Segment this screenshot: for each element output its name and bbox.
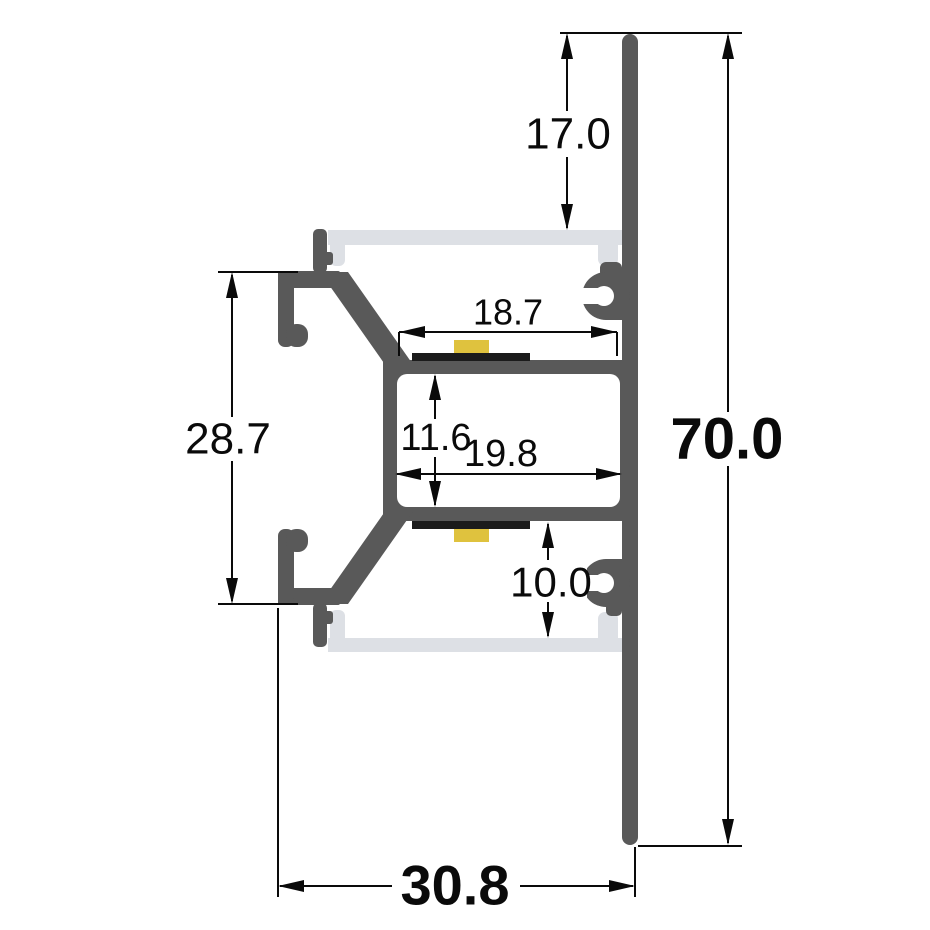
arrowhead-right	[591, 326, 617, 338]
arrowhead-left	[278, 880, 304, 892]
screw-slot-top	[576, 288, 606, 304]
arrowhead-down	[226, 578, 238, 604]
led-strip-bottom	[412, 521, 530, 542]
led-pcb-top	[412, 353, 530, 361]
top-diffuser-stub	[313, 229, 327, 273]
dim-label-channel-height: 11.6	[400, 417, 471, 459]
dim-label-lower-cavity-height: 10.0	[510, 559, 592, 606]
dimension-recess-depth: 17.0	[525, 33, 611, 230]
dim-label-channel-width: 19.8	[464, 433, 538, 475]
arrowhead-up	[226, 272, 238, 298]
arrowhead-right	[609, 880, 635, 892]
dim-label-overall-width: 30.8	[401, 854, 510, 917]
top-diffuser-band	[328, 230, 622, 245]
arrowhead-up	[722, 33, 734, 59]
drawing-canvas: 17.0 70.0 28.7 18.7 11.6	[0, 0, 930, 930]
bottom-flange-foot	[286, 529, 308, 552]
arrowhead-up	[542, 522, 554, 548]
arrowhead-up	[561, 33, 573, 59]
screw-boss-top	[576, 272, 630, 320]
top-flange-foot	[286, 324, 308, 347]
bottom-diffuser-stub	[313, 603, 327, 647]
top-diffuser	[328, 230, 622, 266]
dimension-lower-cavity-height: 10.0	[510, 522, 592, 638]
dim-label-upper-shelf-width: 18.7	[473, 292, 543, 333]
bottom-diffuser-band	[328, 638, 622, 652]
led-chip-top	[454, 340, 489, 353]
dimension-overall-width: 30.8	[278, 608, 635, 917]
dimension-overall-height: 70.0	[638, 33, 792, 846]
led-chip-bottom	[454, 529, 489, 542]
arrowhead-down	[542, 612, 554, 638]
led-strip-top	[412, 340, 530, 361]
profile-cross-section-drawing: 17.0 70.0 28.7 18.7 11.6	[0, 0, 930, 930]
arrowhead-down	[722, 819, 734, 845]
dim-label-front-plate-height: 28.7	[185, 415, 271, 464]
arrowhead-left	[399, 326, 425, 338]
bottom-stub-clip	[324, 611, 333, 624]
bottom-diffuser-right-hook	[598, 612, 618, 648]
dim-label-recess-depth: 17.0	[525, 110, 611, 159]
led-pcb-bottom	[412, 521, 530, 529]
top-stub-clip	[324, 252, 333, 265]
dim-label-overall-height: 70.0	[671, 407, 784, 472]
bottom-diffuser	[328, 610, 622, 652]
arrowhead-down	[561, 204, 573, 230]
top-diffuser-right-hook	[598, 230, 618, 266]
